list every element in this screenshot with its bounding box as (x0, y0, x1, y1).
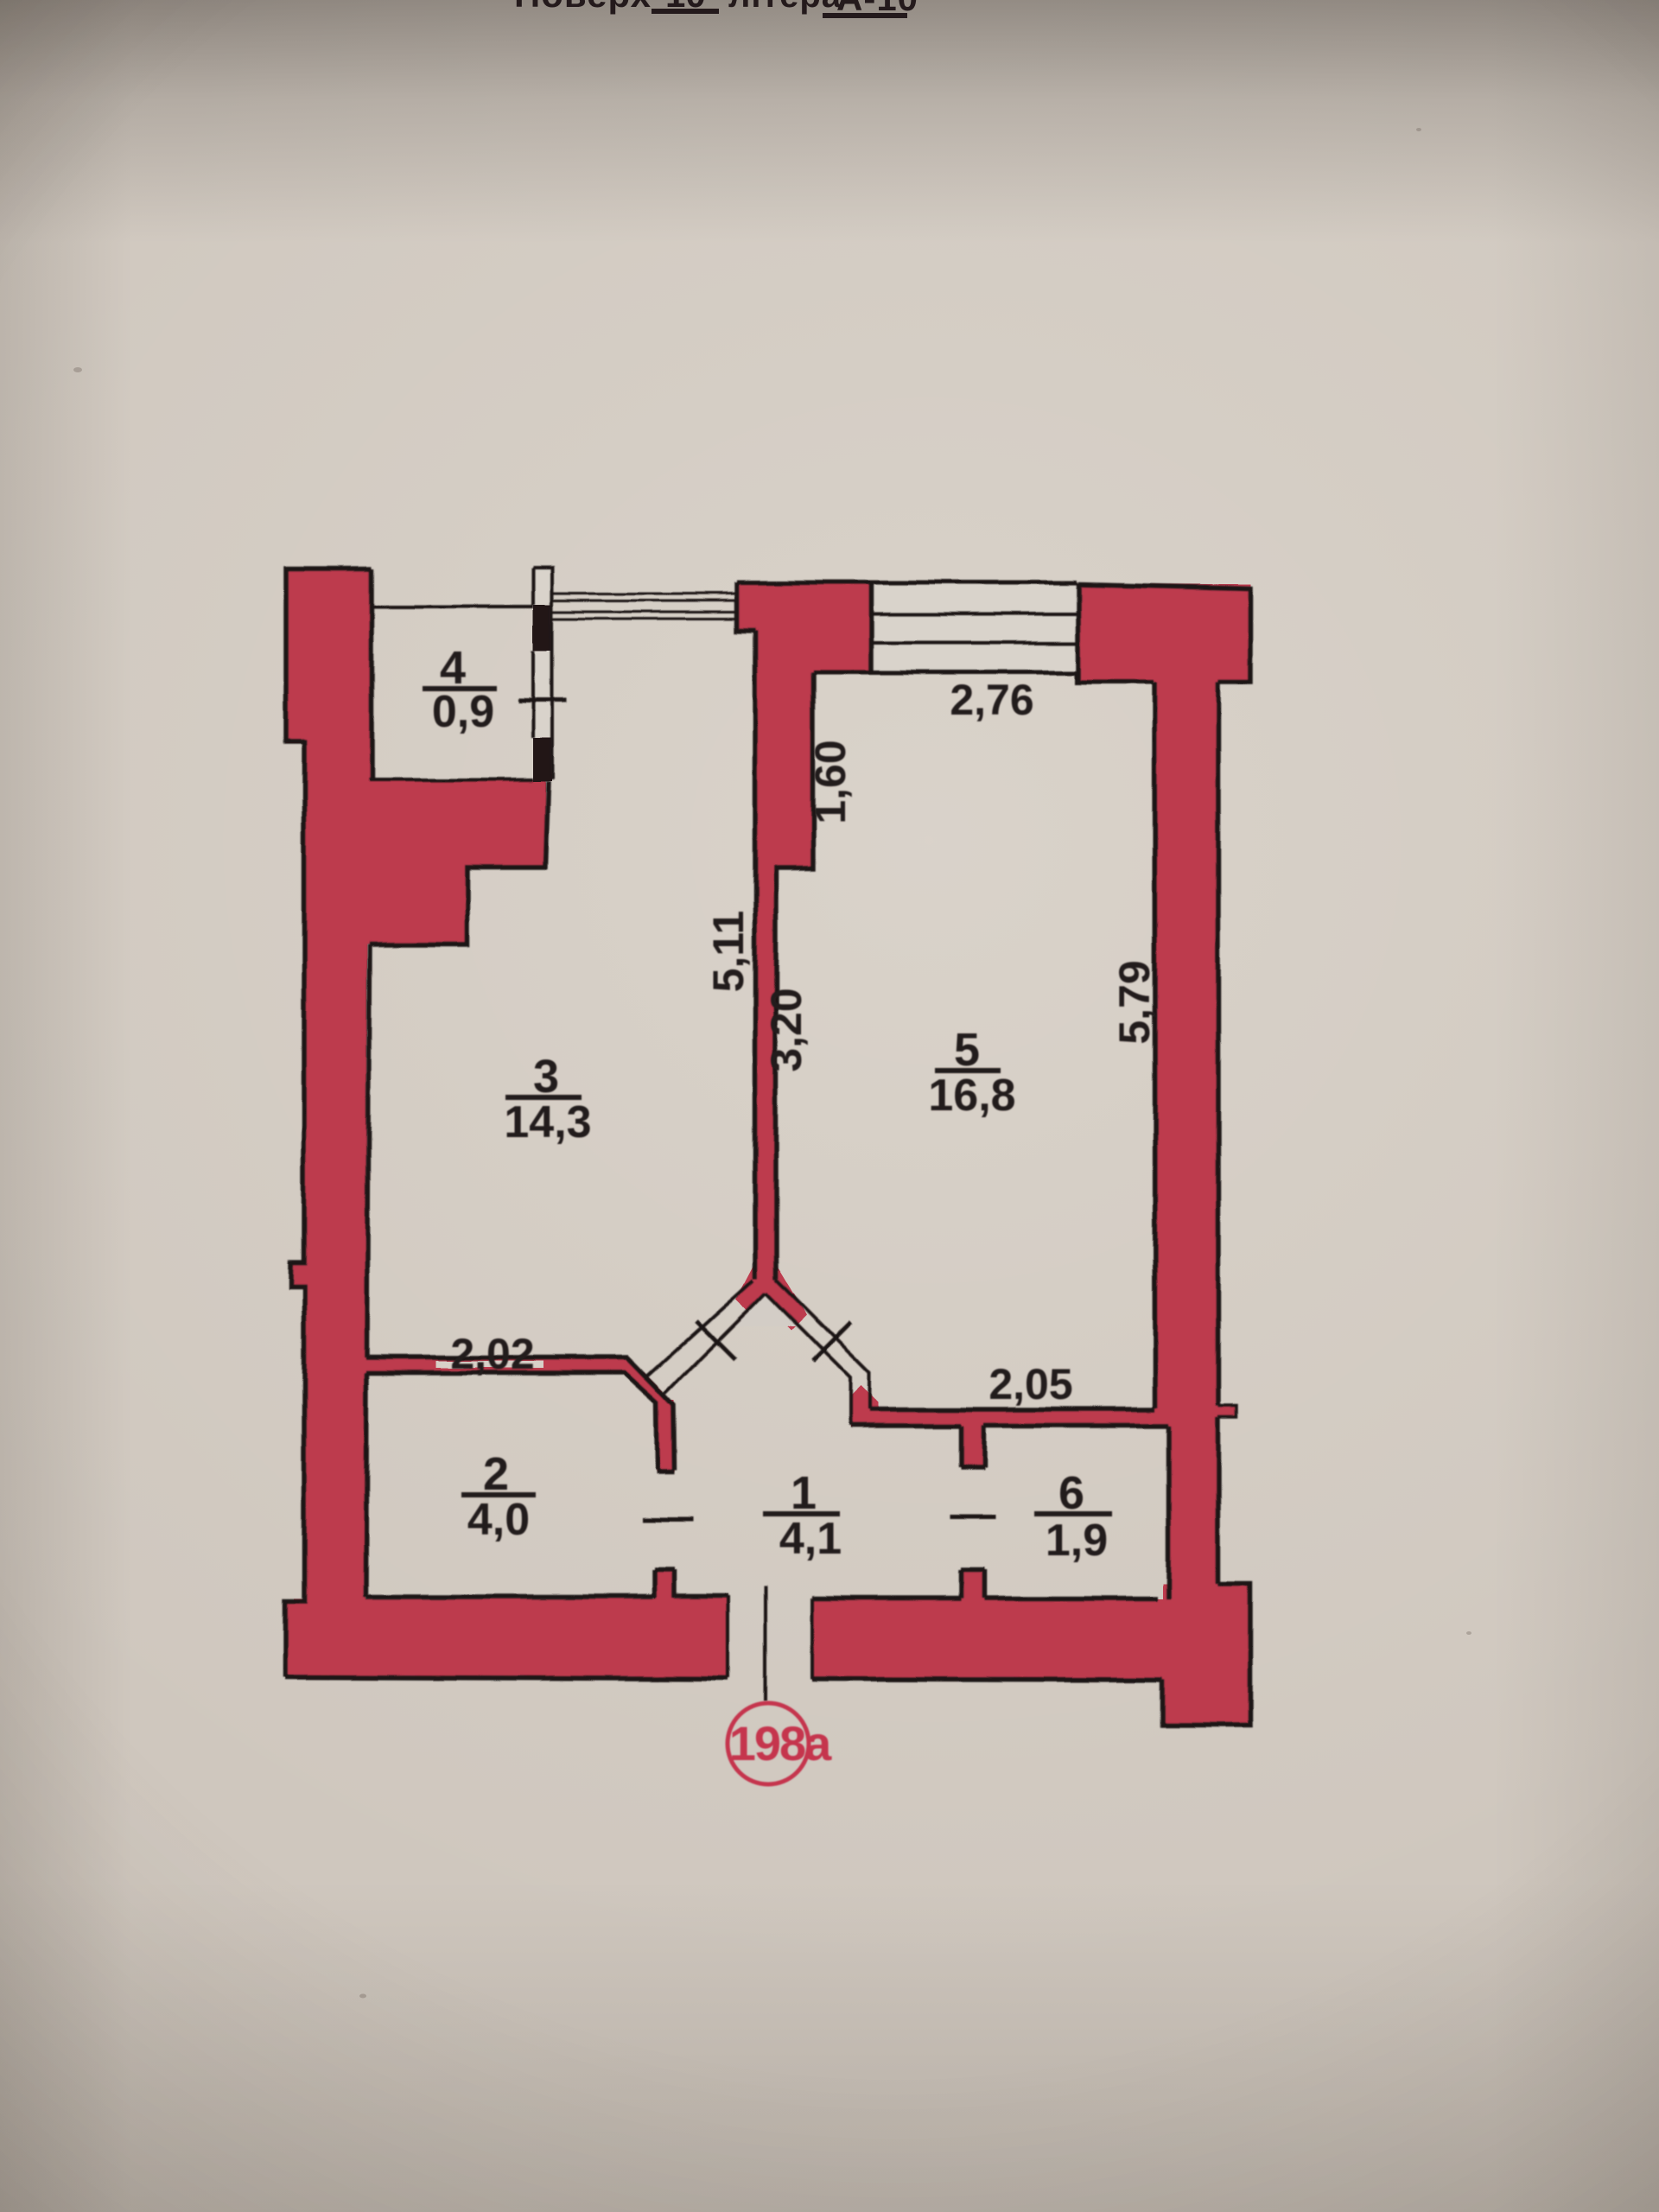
svg-text:198а: 198а (729, 1716, 832, 1770)
svg-text:4,1: 4,1 (779, 1514, 842, 1564)
svg-text:2,02: 2,02 (450, 1330, 534, 1378)
svg-text:0,9: 0,9 (432, 687, 494, 737)
svg-text:16,8: 16,8 (928, 1071, 1015, 1121)
svg-text:14,3: 14,3 (504, 1097, 591, 1147)
svg-text:5,11: 5,11 (704, 911, 753, 993)
svg-text:1,9: 1,9 (1046, 1516, 1108, 1566)
svg-text:1,60: 1,60 (806, 740, 855, 823)
svg-text:2,05: 2,05 (988, 1360, 1072, 1408)
svg-text:4,0: 4,0 (467, 1495, 530, 1545)
svg-text:Поверх: Поверх (514, 0, 652, 15)
svg-text:2,76: 2,76 (950, 676, 1033, 724)
svg-text:3,20: 3,20 (762, 988, 810, 1071)
svg-text:літера: літера (728, 0, 842, 15)
svg-text:5,79: 5,79 (1110, 960, 1159, 1044)
